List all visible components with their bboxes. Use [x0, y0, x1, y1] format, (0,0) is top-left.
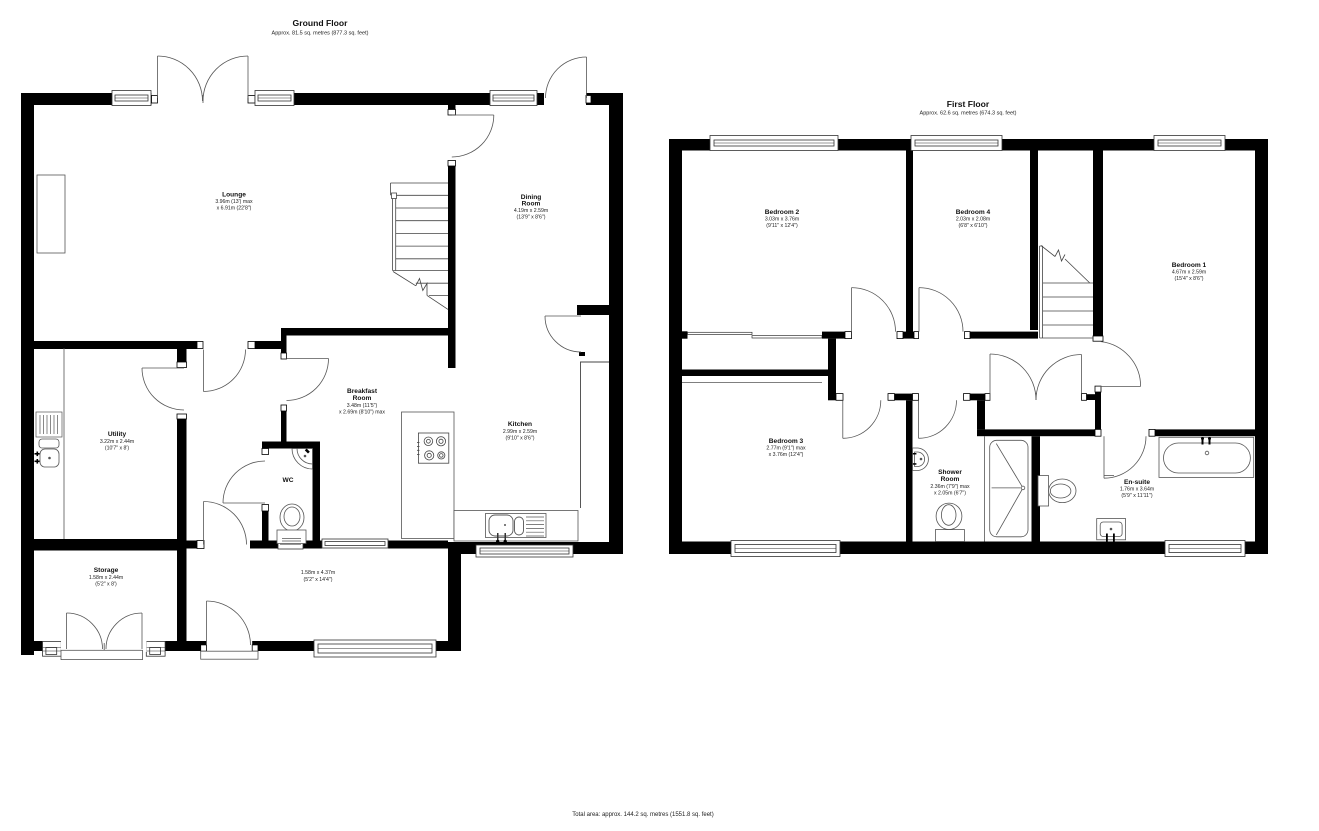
svg-text:Utility: Utility	[108, 431, 127, 438]
svg-text:Bedroom 4: Bedroom 4	[956, 209, 991, 216]
svg-text:(10'7" x 8'): (10'7" x 8')	[105, 446, 130, 452]
svg-text:Storage: Storage	[94, 567, 119, 574]
svg-text:2.99m x 2.59m: 2.99m x 2.59m	[503, 429, 537, 435]
svg-text:Breakfast: Breakfast	[347, 388, 378, 395]
svg-text:Lounge: Lounge	[222, 192, 246, 199]
svg-text:Bedroom 3: Bedroom 3	[769, 438, 804, 445]
svg-text:2.03m x 2.08m: 2.03m x 2.08m	[956, 217, 990, 223]
svg-text:(6'8" x 6'10"): (6'8" x 6'10")	[958, 223, 987, 229]
svg-text:Shower: Shower	[938, 469, 962, 476]
svg-text:(5'2" x 8'): (5'2" x 8')	[95, 582, 117, 588]
svg-text:(5'9" x 11'11"): (5'9" x 11'11")	[1121, 493, 1152, 499]
svg-text:1.58m x 2.44m: 1.58m x 2.44m	[89, 575, 123, 581]
svg-text:2.77m (9'1") max: 2.77m (9'1") max	[766, 446, 806, 452]
svg-text:3.22m x 2.44m: 3.22m x 2.44m	[100, 439, 134, 445]
svg-text:x 2.05m (6'7"): x 2.05m (6'7")	[934, 491, 966, 497]
svg-text:Approx. 81.5 sq. metres (877.3: Approx. 81.5 sq. metres (877.3 sq. feet)	[272, 31, 369, 37]
svg-text:x 6.91m (22'8"): x 6.91m (22'8")	[217, 206, 252, 212]
svg-text:Bedroom 1: Bedroom 1	[1172, 262, 1207, 269]
svg-text:x 2.69m (8'10") max: x 2.69m (8'10") max	[339, 410, 385, 416]
svg-text:2.36m (7'9") max: 2.36m (7'9") max	[930, 484, 970, 490]
svg-text:First Floor: First Floor	[947, 99, 990, 109]
svg-text:3.48m (11'5"): 3.48m (11'5")	[347, 403, 378, 409]
svg-text:Bedroom 2: Bedroom 2	[765, 209, 800, 216]
svg-text:En-suite: En-suite	[1124, 479, 1150, 486]
svg-text:1.76m x 3.64m: 1.76m x 3.64m	[1120, 487, 1154, 493]
svg-text:(9'11" x 12'4"): (9'11" x 12'4")	[766, 223, 798, 229]
svg-text:x 3.76m (12'4"): x 3.76m (12'4")	[769, 452, 804, 458]
svg-text:WC: WC	[283, 477, 294, 484]
svg-text:3.96m (13') max: 3.96m (13') max	[215, 199, 253, 205]
svg-text:(13'9" x 8'6"): (13'9" x 8'6")	[516, 215, 545, 221]
svg-text:Room: Room	[941, 476, 960, 483]
svg-text:Room: Room	[522, 201, 541, 208]
svg-text:Room: Room	[353, 395, 372, 402]
svg-text:4.67m x 2.59m: 4.67m x 2.59m	[1172, 270, 1206, 276]
svg-text:Approx. 62.6 sq. metres (674.3: Approx. 62.6 sq. metres (674.3 sq. feet)	[920, 111, 1017, 117]
svg-text:1.58m x 4.37m: 1.58m x 4.37m	[301, 570, 335, 576]
svg-text:3.03m x 3.76m: 3.03m x 3.76m	[765, 217, 799, 223]
svg-text:(9'10" x 8'6"): (9'10" x 8'6")	[505, 436, 534, 442]
svg-text:4.19m x 2.59m: 4.19m x 2.59m	[514, 208, 548, 214]
svg-text:(15'4" x 8'6"): (15'4" x 8'6")	[1174, 276, 1203, 282]
svg-text:Total area: approx. 144.2 sq.: Total area: approx. 144.2 sq. metres (15…	[572, 812, 713, 818]
svg-text:(5'2" x 14'4"): (5'2" x 14'4")	[303, 577, 332, 583]
svg-text:Kitchen: Kitchen	[508, 421, 532, 428]
svg-text:Ground Floor: Ground Floor	[293, 18, 349, 28]
